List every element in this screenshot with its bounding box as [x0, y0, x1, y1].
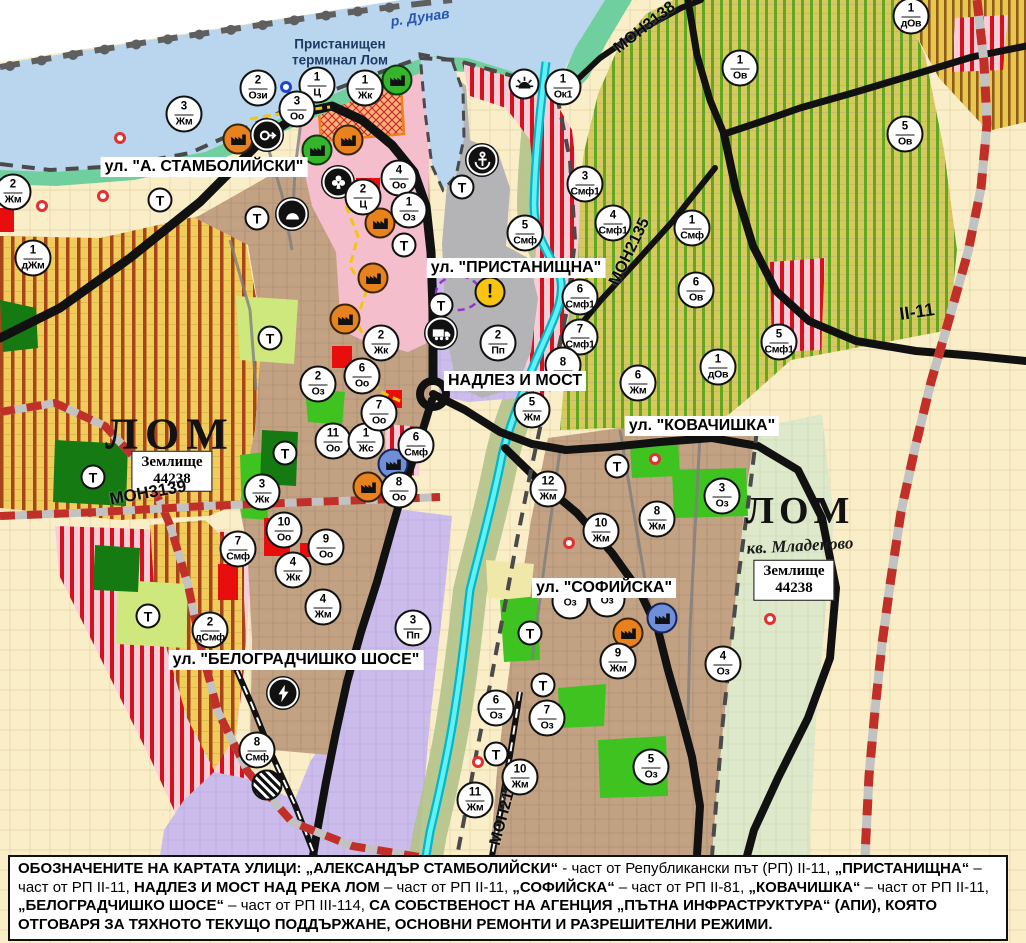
zone-marker-Жм12: 12Жм [530, 471, 567, 508]
zone-marker-Смф5: 5Смф [507, 215, 544, 252]
transformer-marker: Т [450, 175, 475, 200]
zone-marker-Ов6: 6Ов [678, 272, 715, 309]
crossing-icon [252, 770, 283, 801]
road-number-label: МОН3138 [611, 0, 680, 58]
transformer-marker: Т [136, 604, 161, 629]
warning-icon: ! [475, 277, 506, 308]
transformer-marker: Т [245, 206, 270, 231]
legend-note-segment: „БЕЛОГРАДЧИШКО ШОСЕ“ [18, 897, 224, 914]
factory-icon-orange [358, 263, 389, 294]
factory-icon-orange [333, 125, 364, 156]
zone-marker-Оз3: 3Оз [704, 478, 741, 515]
zone-marker-Жм11: 11Жм [457, 782, 494, 819]
zone-marker-Пп2: 2Пп [480, 325, 517, 362]
zone-marker-Оо7: 7Оо [361, 395, 398, 432]
transformer-marker: Т [531, 673, 556, 698]
street-label: НАДЛЕЗ И МОСТ [444, 371, 586, 391]
zone-marker-Жк2: 2Жк [363, 325, 400, 362]
arch-icon [277, 199, 308, 230]
zone-marker-Жк3: 3Жк [244, 474, 281, 511]
zone-marker-Оо11: 11Оо [315, 423, 352, 460]
zone-marker-Смф14: 4Смф1 [595, 205, 632, 242]
zone-marker-Оз2: 2Оз [300, 366, 337, 403]
zone-marker-Оз5: 5Оз [633, 749, 670, 786]
transformer-marker: Т [258, 326, 283, 351]
red-dot-marker [649, 453, 661, 465]
legend-note-segment: „СОФИЙСКА“ [512, 879, 614, 896]
zone-marker-дЖм1: 1дЖм [15, 240, 52, 277]
zone-marker-Жм5: 5Жм [514, 392, 551, 429]
zone-marker-Оз7: 7Оз [529, 700, 566, 737]
zone-marker-Ок11: 1Ок1 [545, 69, 582, 106]
zone-marker-Смф7: 7Смф [220, 531, 257, 568]
map-canvas[interactable]: 2Ози1Ц1Жк3Оо3Жм2Жм1дЖм4Оо2Ц1Оз2Жк1Ок13См… [0, 0, 1026, 943]
zone-marker-Пп3: 3Пп [395, 610, 432, 647]
zone-marker-Жм9: 9Жм [600, 643, 637, 680]
factory-icon-blue [647, 603, 678, 634]
zone-marker-Жк1: 1Жк [347, 70, 384, 107]
factory-icon-orange [353, 472, 384, 503]
zone-marker-Жм10: 10Жм [583, 513, 620, 550]
zone-marker-Ов1: 1Ов [722, 50, 759, 87]
zone-marker-Оз6: 6Оз [478, 690, 515, 727]
zone-marker-дСмф2: 2дСмф [192, 612, 229, 649]
factory-icon-green [382, 65, 413, 96]
street-label: ул. "БЕЛОГРАДЧИШКО ШОСЕ" [169, 650, 424, 670]
zone-marker-Жм8: 8Жм [639, 501, 676, 538]
transformer-marker: Т [518, 621, 543, 646]
map-overlay: 2Ози1Ц1Жк3Оо3Жм2Жм1дЖм4Оо2Ц1Оз2Жк1Ок13См… [0, 0, 1026, 943]
zone-marker-Жм2: 2Жм [0, 174, 32, 211]
factory-icon-orange [223, 124, 254, 155]
zone-marker-Ози2: 2Ози [240, 70, 277, 107]
zone-marker-дОв1: 1дОв [893, 0, 930, 35]
red-dot-marker [36, 200, 48, 212]
zone-marker-Оо8: 8Оо [381, 472, 418, 509]
zone-marker-Оо3: 3Оо [279, 91, 316, 128]
street-label: ул. "СОФИЙСКА" [532, 578, 676, 598]
street-label: ул. "ПРИСТАНИЩНА" [427, 258, 606, 278]
zone-marker-Жм6: 6Жм [620, 365, 657, 402]
sun-icon [509, 69, 540, 100]
zone-marker-Оо6: 6Оо [344, 358, 381, 395]
transformer-marker: Т [484, 742, 509, 767]
truck-icon [426, 318, 457, 349]
lightning-icon [268, 678, 299, 709]
factory-icon-orange [330, 304, 361, 335]
red-dot-marker [97, 190, 109, 202]
zone-marker-Смф15: 5Смф1 [761, 324, 798, 361]
quarter-name-label: кв. Младеново [746, 533, 854, 559]
transformer-marker: Т [81, 465, 106, 490]
zone-marker-Жм3: 3Жм [166, 96, 203, 133]
zone-marker-дОв1: 1дОв [700, 349, 737, 386]
arrow-icon [252, 120, 283, 151]
zone-marker-Ц2: 2Ц [345, 179, 382, 216]
transformer-marker: Т [392, 233, 417, 258]
zone-marker-Смф13: 3Смф1 [567, 166, 604, 203]
zone-marker-Оз4: 4Оз [705, 646, 742, 683]
zone-marker-Смф16: 6Смф1 [562, 279, 599, 316]
legend-note-segment: - част от Републикански път (РП) II-11, [558, 860, 834, 877]
zone-marker-Ов5: 5Ов [887, 116, 924, 153]
zone-marker-Жм4: 4Жм [305, 589, 342, 626]
legend-note-segment: – част от РП II-81, [615, 879, 749, 896]
street-label: ул. "КОВАЧИШКА" [625, 416, 779, 436]
zone-marker-Смф6: 6Смф [398, 427, 435, 464]
transformer-marker: Т [148, 188, 173, 213]
red-dot-marker [114, 132, 126, 144]
transformer-marker: Т [273, 441, 298, 466]
zone-marker-Жк4: 4Жк [275, 552, 312, 589]
legend-note: ОБОЗНАЧЕНИТЕ НА КАРТАТА УЛИЦИ: „АЛЕКСАНД… [8, 855, 1008, 941]
red-dot-marker [472, 756, 484, 768]
city-name-label: ЛОМ [746, 489, 855, 533]
zone-marker-Оз1: 1Оз [391, 192, 428, 229]
street-label: ул. "А. СТАМБОЛИЙСКИ" [101, 157, 308, 177]
legend-note-segment: – част от РП II-11, [380, 879, 513, 896]
legend-note-segment: „ПРИСТАНИЩНА“ [835, 860, 970, 877]
zone-marker-Жм10: 10Жм [502, 759, 539, 796]
legend-note-segment: ОБОЗНАЧЕНИТЕ НА КАРТАТА УЛИЦИ: „АЛЕКСАНД… [18, 860, 558, 877]
legend-note-segment: „КОВАЧИШКА“ [748, 879, 860, 896]
zone-marker-Оо10: 10Оо [266, 512, 303, 549]
transformer-marker: Т [605, 454, 630, 479]
legend-note-segment: – част от РП II-11, [860, 879, 988, 896]
river-name-label: р. Дунав [390, 5, 451, 29]
terminal-name-label: Пристанищен терминал Лом [292, 36, 388, 67]
road-number-label: II-11 [898, 299, 936, 325]
legend-note-segment: – част от РП III-114, [224, 897, 369, 914]
red-dot-marker [563, 537, 575, 549]
zone-marker-Оо9: 9Оо [308, 529, 345, 566]
transformer-marker: Т [429, 293, 454, 318]
red-dot-marker [764, 613, 776, 625]
zone-marker-Смф8: 8Смф [239, 732, 276, 769]
anchor-icon [467, 145, 498, 176]
zone-marker-Смф1: 1Смф [674, 210, 711, 247]
legend-note-segment: НАДЛЕЗ И МОСТ НАД РЕКА ЛОМ [134, 879, 380, 896]
land-unit-label: Землище 44238 [753, 560, 834, 601]
